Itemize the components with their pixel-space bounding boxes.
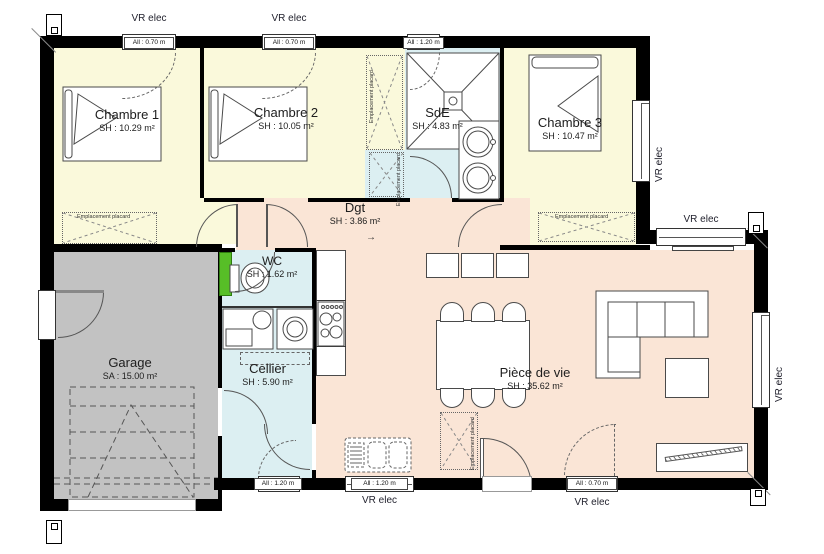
wall-left-lower <box>40 338 54 511</box>
window-sill-label: All : 1.20 m <box>403 37 444 49</box>
vr-elec-label: VR elec <box>774 332 785 402</box>
room-name: Chambre 3 <box>500 116 640 131</box>
wall-right-bedroom-upper <box>636 36 650 100</box>
chair <box>502 302 526 322</box>
entry-door-opening <box>482 476 532 492</box>
vr-elec-label: VR elec <box>656 214 746 225</box>
wall-bottom-4 <box>532 478 566 490</box>
wall-right-living-upper <box>754 244 768 312</box>
closet-area-hall-tall: Emplacement placard <box>366 55 403 150</box>
cellier-counter-sink <box>222 308 274 350</box>
wall-wc-north-right <box>275 248 312 252</box>
room-name: Chambre 2 <box>216 106 356 121</box>
room-name: Garage <box>60 356 200 371</box>
closet-label: Emplacement placard <box>77 214 130 220</box>
room-label-chambre2: Chambre 2 SH : 10.05 m² <box>216 106 356 131</box>
window-sill-label: All : 1.20 m <box>351 478 408 490</box>
chair <box>440 302 464 322</box>
room-label-garage: Garage SA : 15.00 m² <box>60 356 200 381</box>
wall-bottom-3 <box>414 478 482 490</box>
room-name: Pièce de vie <box>470 366 600 381</box>
floor-plan: Emplacement placard Emplacement placard … <box>0 0 824 554</box>
direction-arrow-icon: → <box>366 232 376 243</box>
room-area: SH : 5.90 m² <box>210 377 325 387</box>
washing-machine <box>276 308 314 350</box>
room-area: SH : 4.83 m² <box>395 121 480 131</box>
room-area: SH : 35.62 m² <box>470 381 600 391</box>
wall-top-2 <box>176 36 262 48</box>
closet-area-chambre3: Emplacement placard <box>538 212 635 242</box>
window-sill-label: All : 0.70 m <box>264 37 314 49</box>
closet-area-hall-small: Emplacement placard <box>369 152 404 197</box>
vr-elec-label: VR elec <box>262 13 316 24</box>
kitchen-unit-3 <box>496 253 529 278</box>
door-leaf-garage-side <box>56 290 104 293</box>
closet-area-chambre1: Emplacement placard <box>62 212 157 244</box>
wall-chambre3-living <box>500 245 650 250</box>
wall-chambre2-dgt-left <box>204 198 264 202</box>
room-name: Dgt <box>300 201 410 216</box>
room-label-sde: SdE SH : 4.83 m² <box>395 106 480 131</box>
coffee-table <box>665 358 709 398</box>
room-label-wc: WC SH : 1.62 m² <box>232 255 312 279</box>
garage-door-opening <box>68 499 196 511</box>
wall-left-upper <box>40 36 54 292</box>
wall-garage-bottom-left <box>40 499 70 511</box>
room-name: Cellier <box>210 362 325 377</box>
vr-elec-label: VR elec <box>654 112 665 182</box>
room-area: SH : 10.05 m² <box>216 121 356 131</box>
window-leaf-living <box>614 424 616 476</box>
wall-step-left <box>636 230 658 244</box>
room-area: SH : 10.47 m² <box>500 131 640 141</box>
wall-top-4 <box>440 36 650 48</box>
window-top-living <box>656 228 746 246</box>
wall-top-3 <box>316 36 407 48</box>
door-leaf-chambre1 <box>236 204 238 247</box>
wall-chambre1-chambre2 <box>200 48 204 198</box>
window-right-living <box>752 312 770 408</box>
kitchen-unit-1 <box>426 253 459 278</box>
wall-right-living-lower <box>754 408 768 490</box>
room-name: WC <box>232 255 312 269</box>
room-label-dgt: Dgt SH : 3.86 m² <box>300 201 410 226</box>
room-label-chambre3: Chambre 3 SH : 10.47 m² <box>500 116 640 141</box>
room-area: SH : 10.29 m² <box>57 123 197 133</box>
window-sill-label: All : 0.70 m <box>124 37 174 49</box>
garage-side-door-opening <box>38 290 56 340</box>
closet-area-living: Emplacement placard <box>440 412 478 470</box>
wall-bottom-1 <box>214 478 258 490</box>
post-marker <box>46 14 62 36</box>
room-area: SA : 15.00 m² <box>60 371 200 381</box>
vr-elec-label: VR elec <box>566 497 618 508</box>
sideboard <box>656 443 748 472</box>
window-sill-label: All : 0.70 m <box>567 478 617 490</box>
vr-elec-label: VR elec <box>345 495 414 506</box>
post-marker <box>46 520 62 544</box>
closet-label: Emplacement placard <box>555 214 608 220</box>
room-label-chambre1: Chambre 1 SH : 10.29 m² <box>57 108 197 133</box>
room-area: SH : 3.86 m² <box>300 216 410 226</box>
room-name: SdE <box>395 106 480 121</box>
room-label-piece-de-vie: Pièce de vie SH : 35.62 m² <box>470 366 600 391</box>
wall-bottom-5 <box>618 478 768 490</box>
sliding-panel-line <box>672 246 734 251</box>
wall-bottom-2 <box>300 478 345 490</box>
sideboard-hatch <box>665 446 743 462</box>
closet-label: Emplacement placard <box>396 153 402 206</box>
cooktop <box>317 301 345 347</box>
wall-cellier-living-lower <box>312 470 316 478</box>
wall-garage-bottom-right <box>196 499 222 511</box>
chair <box>471 302 495 322</box>
double-washbasin <box>458 120 500 200</box>
post-marker <box>748 212 764 234</box>
room-area: SH : 1.62 m² <box>232 269 312 279</box>
garage-door-mechanism <box>54 384 222 500</box>
closet-label: Emplacement placard <box>369 70 375 123</box>
window-sill-label: All : 1.20 m <box>254 478 302 490</box>
kitchen-unit-2 <box>461 253 494 278</box>
door-leaf-chambre2 <box>266 204 268 247</box>
vr-elec-label: VR elec <box>122 13 176 24</box>
room-label-cellier: Cellier SH : 5.90 m² <box>210 362 325 387</box>
room-name: Chambre 1 <box>57 108 197 123</box>
closet-label: Emplacement placard <box>470 417 476 470</box>
kitchen-sink-dashed <box>344 436 412 474</box>
post-marker <box>750 488 766 506</box>
